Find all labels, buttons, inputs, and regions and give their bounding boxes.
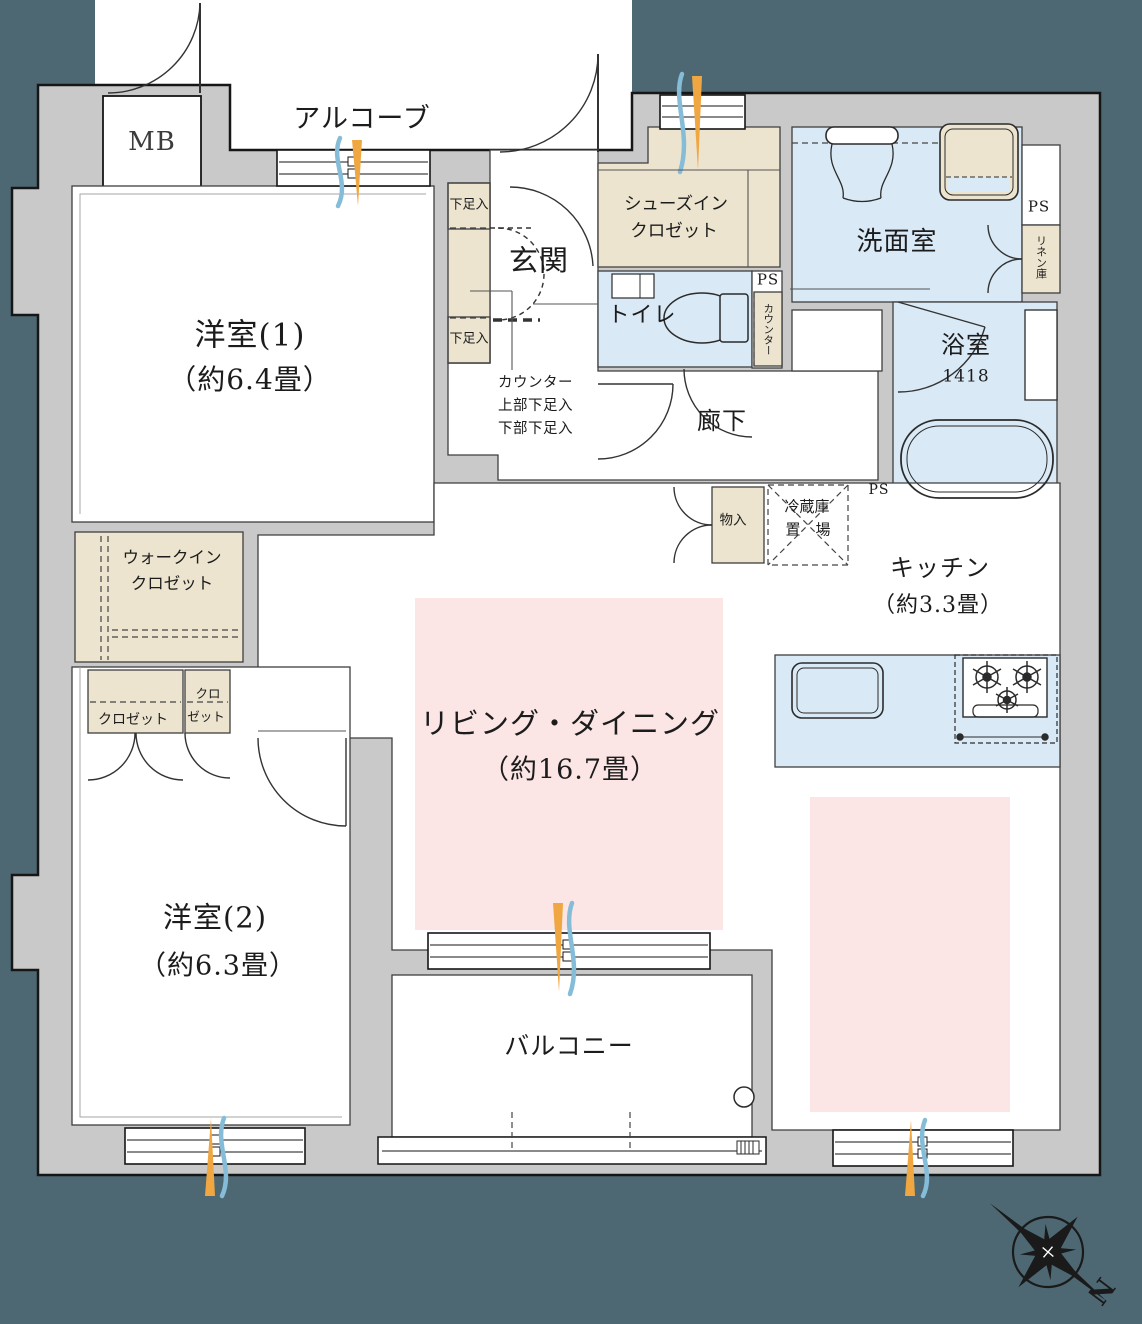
label-entrance: 玄関 xyxy=(509,247,569,276)
label-wic-2: クロゼット xyxy=(131,576,214,593)
label-kitchen-size: （約3.3畳） xyxy=(873,595,1003,617)
label-living-size: （約16.7畳） xyxy=(482,757,658,784)
label-fridge-1: 冷蔵庫 xyxy=(784,500,829,515)
room-bedroom1 xyxy=(72,186,434,522)
label-balcony: バルコニー xyxy=(504,1034,634,1059)
label-ps-kitchen: PS xyxy=(868,483,889,497)
label-bedroom1-name: 洋室(1) xyxy=(195,321,306,352)
label-counter-note-1: カウンター xyxy=(498,376,573,391)
label-ps-top-right: PS xyxy=(1028,200,1050,215)
window-shoes-closet xyxy=(660,95,745,129)
label-corridor: 廊下 xyxy=(697,409,747,433)
label-counter-note-2: 上部下足入 xyxy=(498,399,573,414)
living-accent-rect-2 xyxy=(810,797,1010,1112)
label-closet-small-2: ゼット xyxy=(187,711,225,724)
label-washroom: 洗面室 xyxy=(856,229,937,255)
label-bedroom1-size: （約6.4畳） xyxy=(168,366,332,394)
floorplan-drawing xyxy=(0,0,1142,1324)
room-bedroom2 xyxy=(72,667,350,1125)
label-shoe-box-lower: 下足入 xyxy=(449,333,488,346)
label-linen: リネン庫 xyxy=(1036,235,1047,279)
label-kitchen-name: キッチン xyxy=(890,556,990,580)
balcony-hatch xyxy=(737,1141,759,1154)
label-living-name: リビング・ダイニング xyxy=(420,710,720,739)
label-counter-note-3: 下部下足入 xyxy=(498,422,573,437)
window-bedroom2 xyxy=(125,1128,305,1164)
label-bedroom2-name: 洋室(2) xyxy=(163,904,267,933)
label-shoe-box-upper: 下足入 xyxy=(449,199,488,212)
label-bath-size: 1418 xyxy=(942,369,989,386)
label-shoes-closet-2: クロゼット xyxy=(630,223,718,241)
label-toilet: トイレ xyxy=(607,305,676,327)
label-fridge-2: 置 場 xyxy=(785,523,830,538)
balcony-drain xyxy=(734,1087,754,1107)
label-meter-box: MB xyxy=(128,129,176,155)
label-alcove: アルコーブ xyxy=(293,106,431,133)
label-closet-small-1: クロ xyxy=(195,688,220,701)
label-shoes-closet-1: シューズイン xyxy=(624,196,728,214)
washing-machine-pan xyxy=(940,124,1018,200)
label-bath-name: 浴室 xyxy=(941,333,991,357)
label-storage: 物入 xyxy=(720,514,747,528)
label-ps-toilet: PS xyxy=(757,273,779,288)
label-bedroom2-size: （約6.3畳） xyxy=(139,953,297,980)
room-washroom-vestibule xyxy=(792,310,882,371)
label-counter-vertical: カウンター xyxy=(763,303,774,356)
label-closet: クロゼット xyxy=(98,713,168,727)
balcony-railing xyxy=(378,1137,766,1164)
label-wic-1: ウォークイン xyxy=(123,550,222,567)
floorplan: MB アルコーブ 洋室(1) （約6.4畳） 下足入 下足入 玄関 カウンター … xyxy=(0,0,1142,1324)
